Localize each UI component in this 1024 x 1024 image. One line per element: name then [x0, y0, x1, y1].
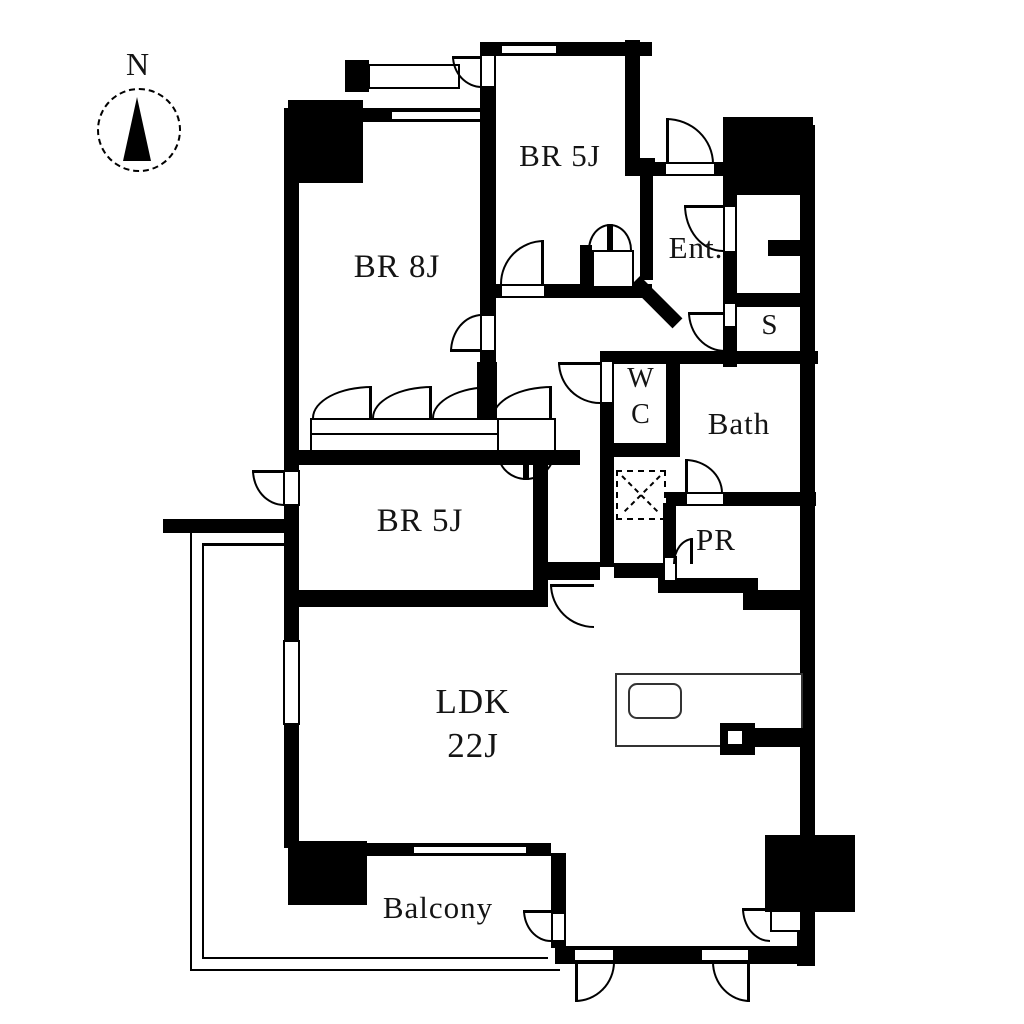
room-label-br8j: BR 8J: [318, 250, 476, 285]
door-arc: [558, 362, 600, 404]
wall-wc-bath-divider: [666, 364, 680, 444]
door-arc: [742, 908, 770, 942]
window-railing: [368, 64, 460, 89]
shoe-closet-notch: [768, 240, 805, 256]
door-jamb: [685, 492, 725, 506]
wall-pr-bottom-right: [743, 590, 805, 610]
closet-body: [592, 250, 634, 288]
door-jamb: [480, 54, 496, 88]
door-arc-entrance: [666, 118, 714, 164]
closet-bifold-door: [312, 386, 372, 418]
door-jamb: [664, 162, 716, 176]
door-jamb: [283, 470, 300, 506]
stove-notch: [728, 731, 742, 744]
closet-bifold-door: [432, 386, 492, 418]
room-label-balcony: Balcony: [358, 892, 518, 925]
door-jamb: [723, 302, 737, 328]
closet-double-door: [526, 452, 555, 480]
door-arc: [500, 240, 544, 284]
room-label-ldk: LDK: [418, 684, 528, 721]
closet-double-door: [497, 452, 526, 480]
compass-north-label: N: [118, 48, 158, 82]
balcony-rail-connector: [202, 543, 288, 546]
wall-washer-bottom: [614, 563, 666, 578]
balcony-divider: [163, 519, 290, 533]
washing-machine-icon: [616, 470, 666, 520]
floor-plan: N: [0, 0, 1024, 1024]
door-jamb: [700, 948, 750, 962]
window: [390, 110, 482, 121]
room-label-br5j-top: BR 5J: [495, 140, 625, 173]
wall-washer-left: [600, 457, 614, 567]
room-label-br5j-mid: BR 5J: [345, 504, 495, 539]
wall-wc-bottom: [600, 443, 680, 457]
kitchen-sink: [628, 683, 682, 719]
door-arc: [688, 312, 725, 352]
room-label-wc-line1: W: [620, 364, 662, 393]
room-label-entrance: Ent.: [650, 232, 742, 265]
door-jamb: [480, 314, 496, 352]
wall-segment: [345, 60, 369, 92]
closet-bifold-door: [492, 386, 552, 418]
room-label-bath: Bath: [690, 408, 788, 441]
door-arc: [450, 314, 482, 352]
compass-needle-icon: [123, 97, 151, 161]
closet-bifold-door: [372, 386, 432, 418]
door-arc: [712, 962, 750, 1002]
room-label-wc-line2: C: [620, 400, 662, 429]
closet-double-door: [588, 224, 610, 250]
door-jamb: [500, 284, 546, 298]
wall-br5jtop-right: [625, 40, 640, 164]
closet-body: [497, 418, 556, 452]
wall-top-closet: [580, 245, 592, 293]
window: [500, 44, 558, 55]
room-label-ldk-size: 22J: [418, 728, 528, 765]
door-arc: [252, 470, 284, 506]
door-jamb: [573, 948, 615, 962]
pillar: [288, 100, 363, 183]
door-jamb: [600, 360, 614, 404]
door-arc: [685, 459, 723, 493]
closet-double-door: [610, 224, 632, 250]
door-jamb: [770, 910, 802, 932]
room-label-pr: PR: [683, 524, 749, 557]
room-label-storage: S: [742, 310, 798, 340]
door-arc: [575, 962, 615, 1002]
kitchen-bar: [753, 728, 803, 747]
